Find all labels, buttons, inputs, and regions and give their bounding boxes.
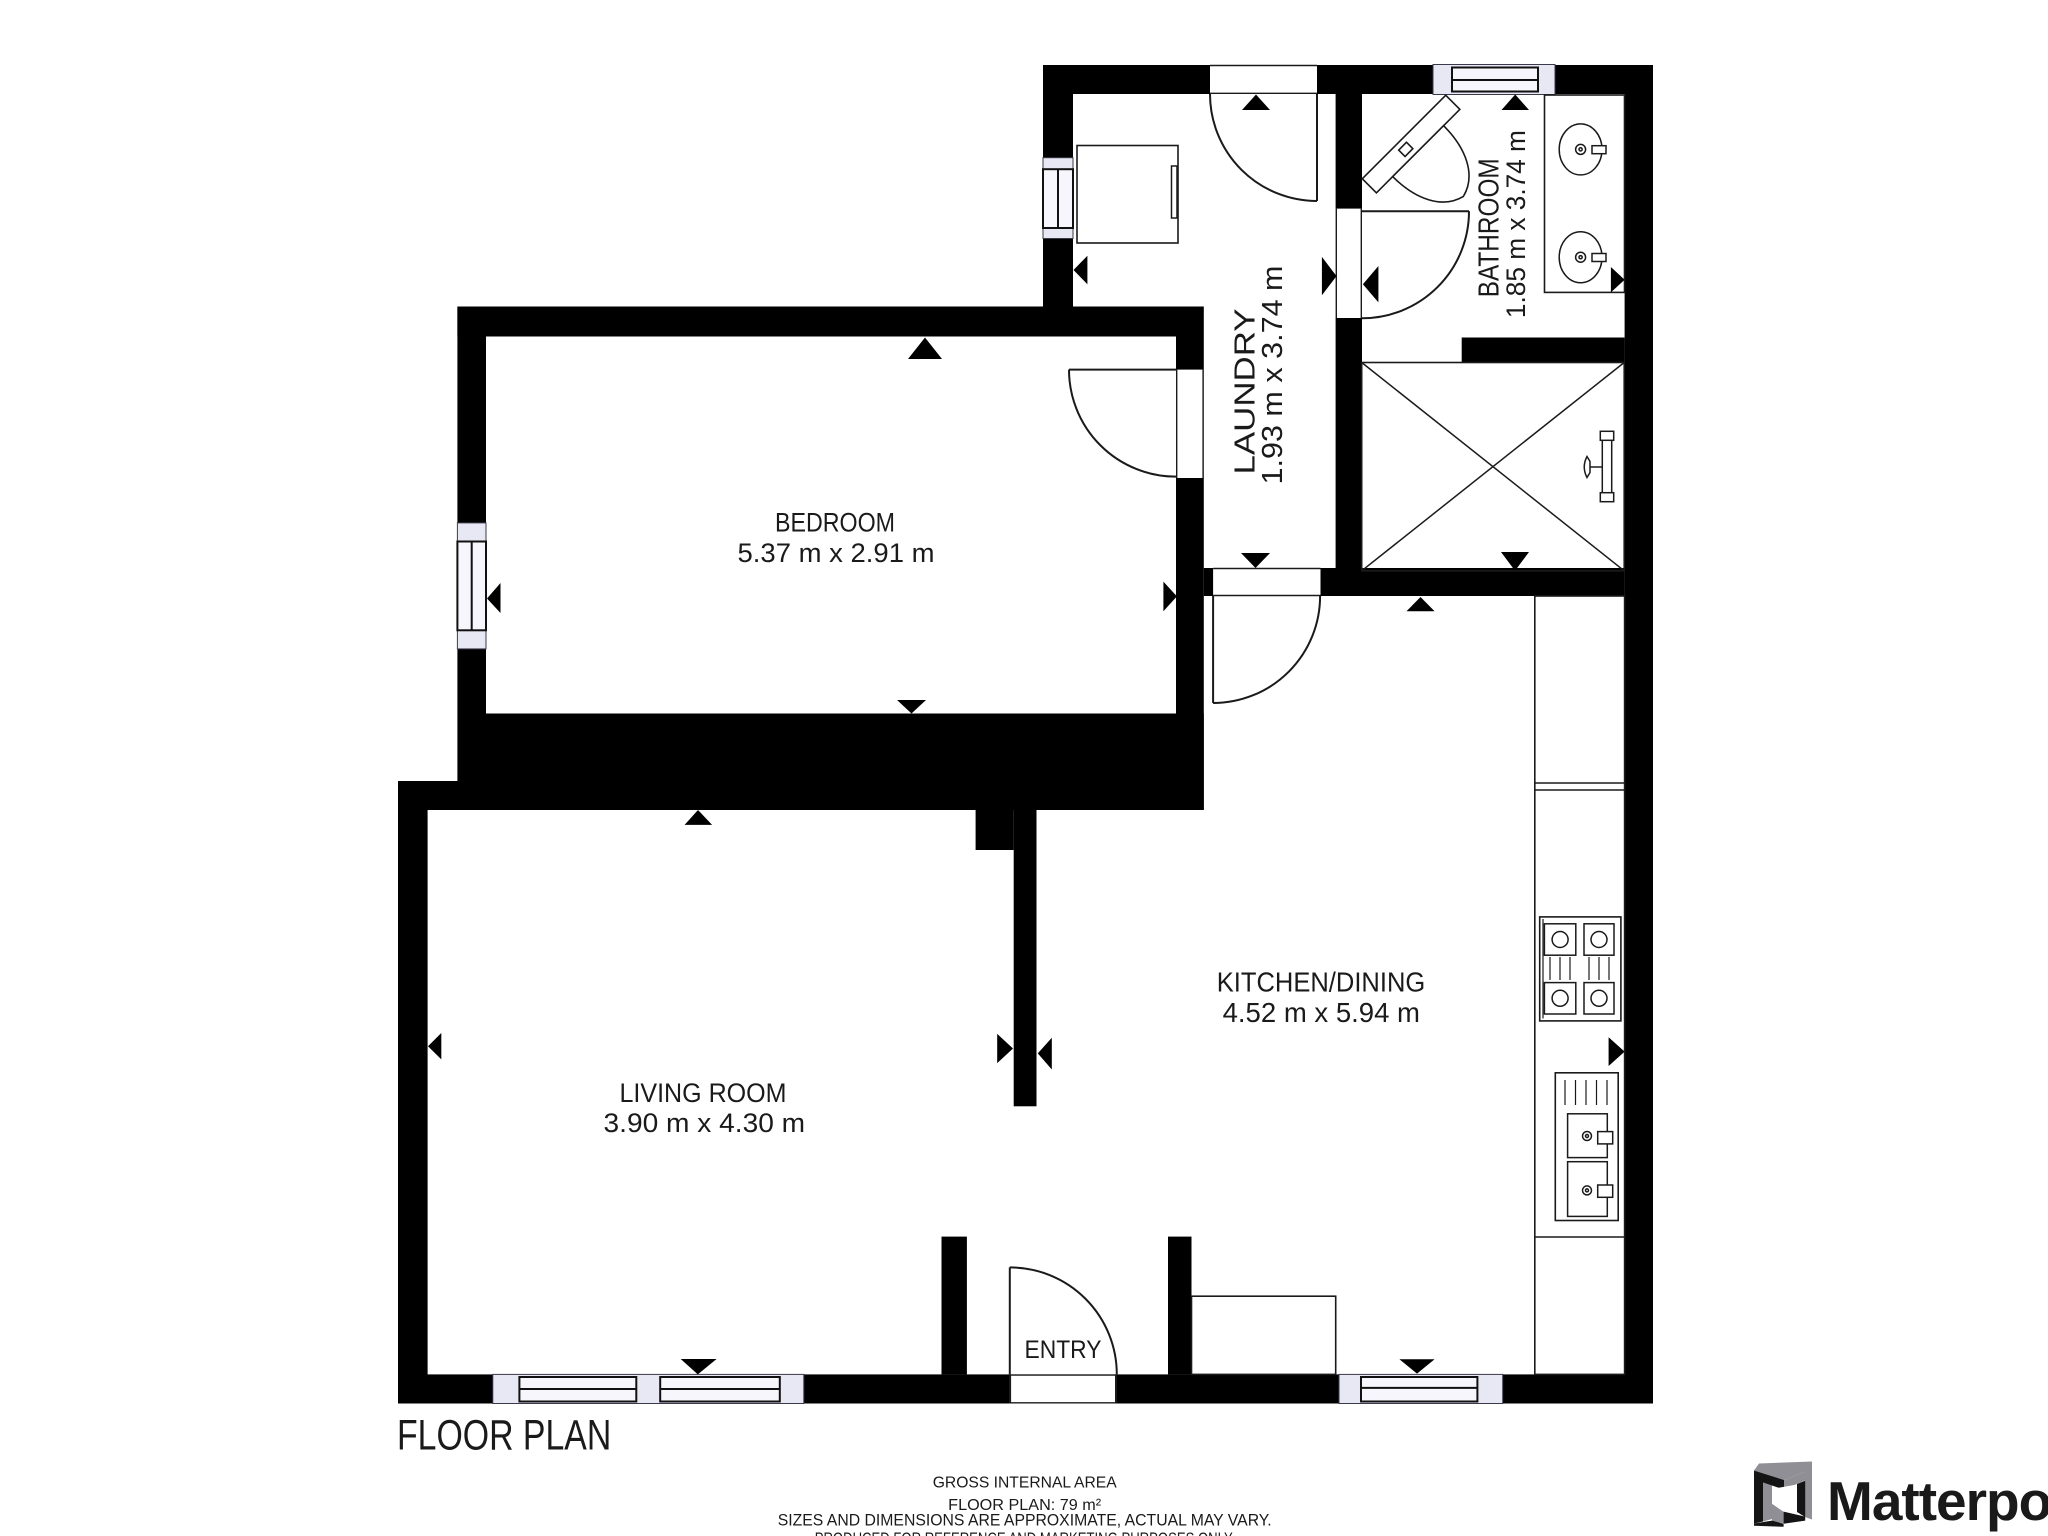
svg-text:SIZES AND DIMENSIONS ARE APPRO: SIZES AND DIMENSIONS ARE APPROXIMATE, AC… <box>778 1511 1272 1530</box>
svg-text:KITCHEN/DINING: KITCHEN/DINING <box>1217 966 1426 997</box>
svg-text:FLOOR PLAN: FLOOR PLAN <box>397 1411 611 1459</box>
svg-text:1.93 m x 3.74 m: 1.93 m x 3.74 m <box>1257 266 1289 485</box>
svg-text:BEDROOM: BEDROOM <box>775 508 895 538</box>
svg-text:PRODUCED FOR REFERENCE AND MAR: PRODUCED FOR REFERENCE AND MARKETING PUR… <box>815 1529 1235 1536</box>
svg-text:Matterport: Matterport <box>1827 1470 2048 1532</box>
svg-text:LIVING ROOM: LIVING ROOM <box>620 1078 787 1108</box>
svg-text:1.85 m x 3.74 m: 1.85 m x 3.74 m <box>1501 130 1531 318</box>
svg-text:5.37 m x 2.91 m: 5.37 m x 2.91 m <box>738 538 935 568</box>
svg-text:ENTRY: ENTRY <box>1025 1336 1102 1364</box>
svg-text:4.52 m x 5.94 m: 4.52 m x 5.94 m <box>1223 997 1420 1028</box>
svg-text:GROSS INTERNAL AREA: GROSS INTERNAL AREA <box>933 1475 1117 1492</box>
svg-text:3.90 m x 4.30 m: 3.90 m x 4.30 m <box>604 1108 806 1138</box>
